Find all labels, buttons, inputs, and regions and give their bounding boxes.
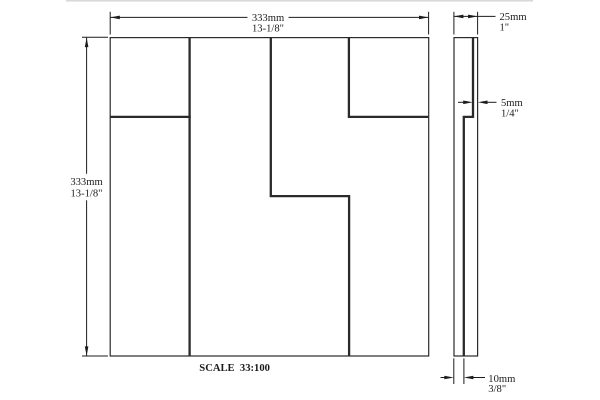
- svg-text:1/4": 1/4": [501, 108, 519, 119]
- svg-text:10mm: 10mm: [488, 374, 516, 385]
- svg-text:333mm: 333mm: [70, 177, 103, 188]
- svg-text:3/8": 3/8": [488, 384, 506, 395]
- svg-text:25mm: 25mm: [500, 12, 528, 23]
- svg-text:13-1/8": 13-1/8": [71, 188, 103, 199]
- svg-text:13-1/8": 13-1/8": [252, 24, 284, 35]
- svg-text:SCALE 33:100: SCALE 33:100: [199, 363, 270, 374]
- svg-text:1": 1": [500, 22, 510, 33]
- svg-text:333mm: 333mm: [252, 13, 285, 24]
- svg-text:5mm: 5mm: [501, 98, 524, 109]
